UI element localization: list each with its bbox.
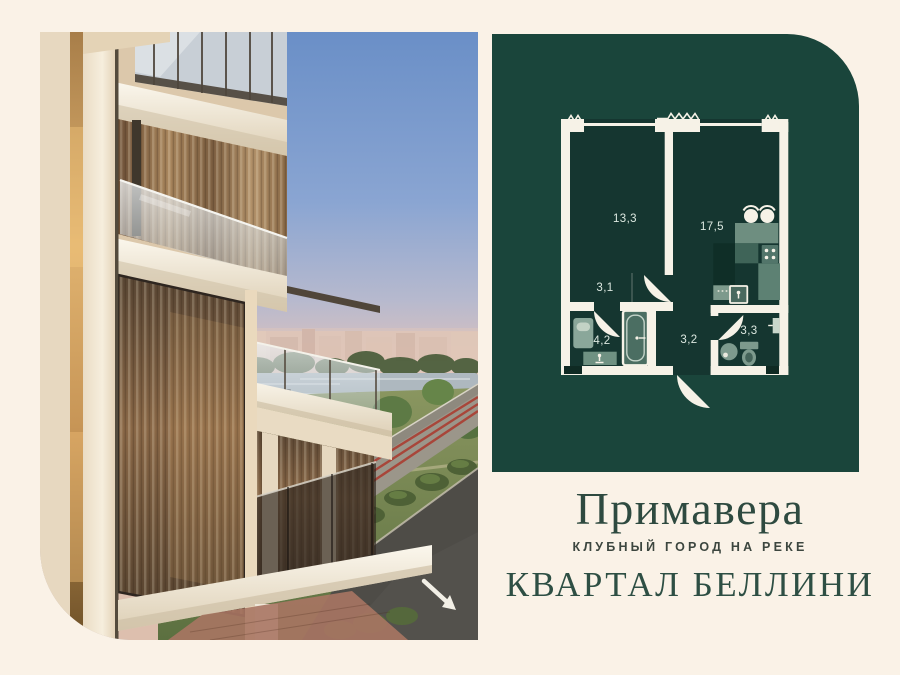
promo-card: 13,3 17,5 3,1 4,2 3,2 3,3 Примавера КЛУБ… (0, 0, 900, 675)
pot-icon (760, 209, 774, 223)
room-area-label: 4,2 (593, 335, 610, 347)
lower-curtain-window (118, 275, 245, 616)
room-area-label: 3,1 (596, 282, 613, 294)
wc-sink-icon (773, 318, 780, 333)
room-area-label: 3,3 (740, 325, 757, 337)
project-tagline: КЛУБНЫЙ ГОРОД НА РЕКЕ (497, 540, 883, 554)
room-area-label: 17,5 (700, 221, 724, 233)
corner-pillar (40, 32, 119, 640)
room-area-label: 13,3 (613, 213, 637, 225)
quarter-name: КВАРТАЛ БЕЛЛИНИ (497, 565, 883, 605)
counter-icon (735, 223, 778, 243)
floorplan: 13,3 17,5 3,1 4,2 3,2 3,3 (492, 34, 859, 472)
room-area-label: 3,2 (680, 334, 697, 346)
floorplan-panel: 13,3 17,5 3,1 4,2 3,2 3,3 (492, 34, 859, 472)
project-name: Примавера (497, 486, 883, 533)
pot-icon (744, 209, 758, 223)
tower-facade (40, 32, 287, 640)
stove-icon (762, 245, 779, 263)
fridge-icon (713, 243, 735, 285)
brand-block: Примавера КЛУБНЫЙ ГОРОД НА РЕКЕ КВАРТАЛ … (497, 486, 883, 605)
building-photo (40, 32, 478, 640)
shower-drain-icon (720, 343, 737, 360)
building-photo-art (40, 32, 478, 640)
